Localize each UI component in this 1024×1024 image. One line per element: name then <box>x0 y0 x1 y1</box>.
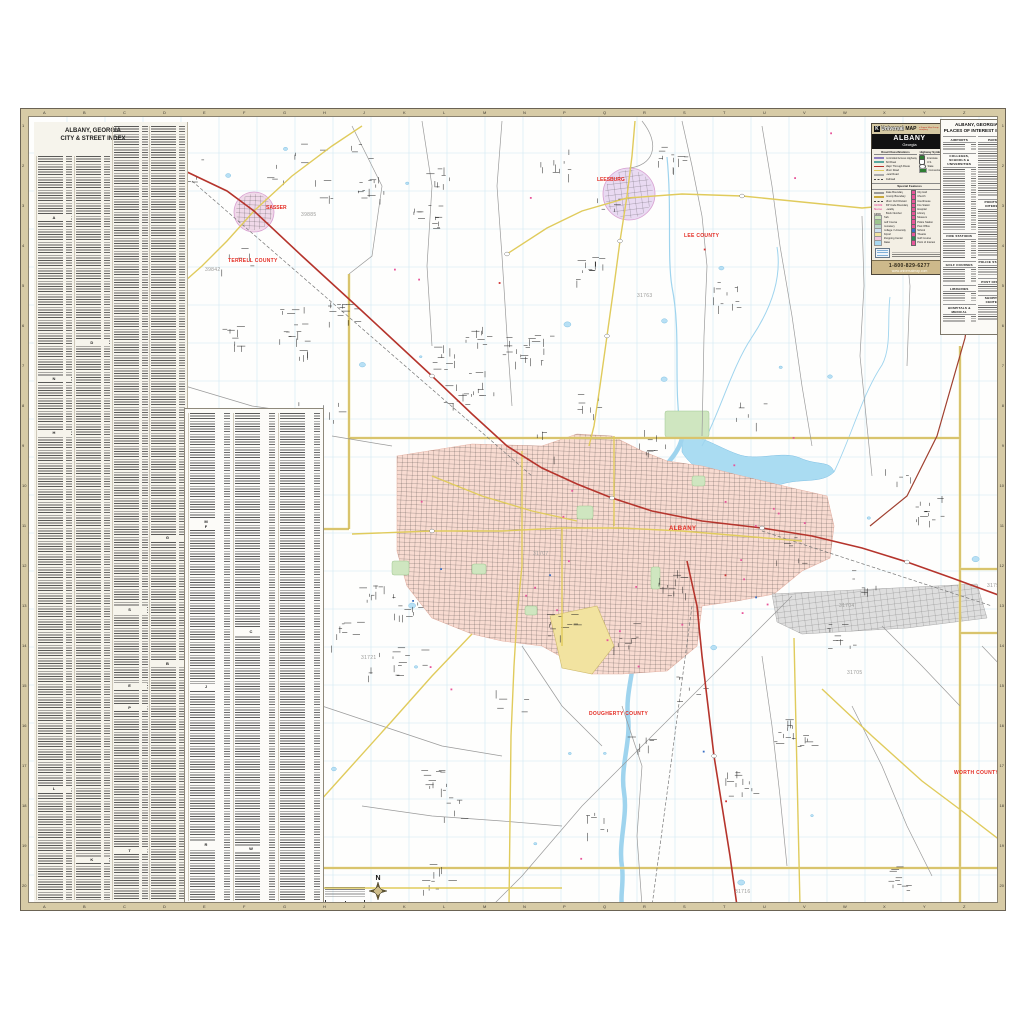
poi-index-panel: ALBANY, GEORGIA PLACES OF INTEREST INDEX… <box>940 119 998 335</box>
poi-section: GOLF COURSES <box>943 261 976 283</box>
map-label-albany: ALBANY <box>669 526 696 532</box>
poi-section-rows <box>943 293 976 302</box>
street-index-column <box>278 413 321 901</box>
frame-grid-number: 9 <box>22 443 24 448</box>
poi-section-rows <box>978 307 999 321</box>
poi-section-rows <box>943 169 976 231</box>
map-label-31721: 31721 <box>361 655 376 661</box>
frame-grid-letter: M <box>483 904 486 909</box>
map-area: SASSER39885TERRELL COUNTY39842LEESBURGLE… <box>28 116 998 903</box>
map-label-worth-county: WORTH COUNTY <box>954 770 998 776</box>
special-symbol-label: Post Office <box>917 225 930 228</box>
street-index-column <box>149 126 186 900</box>
index-section-letter: J <box>189 684 223 690</box>
frame-grid-number: 13 <box>1000 603 1004 608</box>
frame-grid-letter: P <box>563 110 566 115</box>
poi-section: POLICE STATIONS <box>978 259 999 276</box>
special-symbol-label: Theatre <box>917 233 926 236</box>
frame-grid-letter: V <box>803 904 806 909</box>
poi-section: AIRPORTS <box>943 136 976 151</box>
frame-grid-number: 20 <box>1000 883 1004 888</box>
frame-grid-number: 4 <box>1002 243 1004 248</box>
index-section-letter: P <box>113 705 147 711</box>
poi-section-header: FIRE STATIONS <box>943 233 976 240</box>
frame-grid-letter: G <box>283 904 286 909</box>
frame-grid-number: 5 <box>22 283 24 288</box>
frame-grid-letter: E <box>203 904 206 909</box>
copyright-microtext <box>325 887 365 898</box>
road-classifications: Road Classifications Controlled Access H… <box>874 150 917 182</box>
legend-inset-box <box>875 248 890 258</box>
frame-grid-number: 10 <box>22 483 26 488</box>
special-feature-swatch <box>874 192 884 194</box>
street-index-column <box>74 156 111 900</box>
index-section-letter: B <box>150 661 184 667</box>
frame-grid-number: 1 <box>22 123 24 128</box>
map-sheet-frame: AABBCCDDEEFFGGHHJJKKLLMMNNPPQQRRSSTTUUVV… <box>20 108 1006 911</box>
special-symbol-label: Courthouse <box>917 200 930 203</box>
special-symbol-label: School <box>917 229 925 232</box>
road-class-swatch <box>874 161 884 163</box>
frame-grid-number: 14 <box>22 643 26 648</box>
scale-bar <box>325 900 365 903</box>
index-section-letter: K <box>75 857 109 863</box>
frame-grid-letter: J <box>363 904 365 909</box>
frame-grid-letter: U <box>763 904 766 909</box>
frame-grid-letter: T <box>723 904 725 909</box>
frame-grid-number: 5 <box>1002 283 1004 288</box>
index-section-letter: G <box>150 535 184 541</box>
frame-grid-letter: M <box>483 110 486 115</box>
frame-grid-letter: P <box>563 904 566 909</box>
road-class-swatch <box>874 166 884 168</box>
highway-symbol-label: State <box>927 165 933 168</box>
street-index-panel-2: CFJMRW <box>184 408 324 903</box>
frame-grid-number: 18 <box>22 803 26 808</box>
frame-grid-letter: K <box>403 904 406 909</box>
special-feature-swatch <box>874 240 882 245</box>
poi-section: SHOPPING CENTERS <box>978 295 999 321</box>
poi-section-rows <box>978 286 999 293</box>
index-section-letter: C <box>234 629 268 635</box>
frame-grid-letter: Z <box>963 110 965 115</box>
frame-grid-number: 4 <box>22 243 24 248</box>
street-index-column <box>233 413 276 901</box>
poi-section-rows <box>978 211 999 257</box>
brand-map: MAP <box>905 126 916 132</box>
index-section-letter: S <box>113 607 147 613</box>
index-section-letter: D <box>75 340 109 346</box>
frame-grid-number: 19 <box>1000 843 1004 848</box>
frame-grid-number: 11 <box>22 523 26 528</box>
frame-grid-number: 11 <box>1000 523 1004 528</box>
frame-grid-number: 10 <box>1000 483 1004 488</box>
frame-grid-letter: Y <box>923 110 926 115</box>
kappa-logo-icon: K <box>874 126 880 133</box>
map-label-31716: 31716 <box>735 889 750 895</box>
legend-title-block: ALBANY Georgia <box>872 134 947 149</box>
frame-grid-letter: X <box>883 110 886 115</box>
frame-grid-number: 7 <box>22 363 24 368</box>
wall-map-page: AABBCCDDEEFFGGHHJJKKLLMMNNPPQQRRSSTTUUVV… <box>0 0 1024 1024</box>
special-feature-label: Water <box>884 241 891 244</box>
frame-grid-letter: S <box>683 904 686 909</box>
index-section-letter: N <box>37 376 71 382</box>
poi-section-header: COLLEGES, SCHOOLS & UNIVERSITIES <box>943 153 976 168</box>
frame-grid-letter: N <box>523 110 526 115</box>
frame-grid-number: 20 <box>22 883 26 888</box>
frame-grid-letter: Q <box>603 110 606 115</box>
frame-grid-letter: E <box>203 110 206 115</box>
road-class-label: Toll Road <box>886 161 897 164</box>
frame-grid-letter: S <box>683 110 686 115</box>
frame-grid-letter: Y <box>923 904 926 909</box>
frame-grid-letter: A <box>43 904 46 909</box>
map-label-31763: 31763 <box>637 293 652 299</box>
frame-grid-number: 15 <box>1000 683 1004 688</box>
index-section-letter: T <box>113 848 147 854</box>
poi-section-header: HOSPITALS & MEDICAL <box>943 304 976 315</box>
map-label-dougherty-county: DOUGHERTY COUNTY <box>589 711 648 717</box>
map-label-31705: 31705 <box>847 670 862 676</box>
frame-grid-number: 19 <box>22 843 26 848</box>
special-symbol-label: Hospital <box>917 208 926 211</box>
road-class-label: Railroad <box>886 178 896 181</box>
frame-grid-number: 13 <box>22 603 26 608</box>
road-class-swatch <box>874 174 884 176</box>
special-feature-label: Shopping Center <box>884 237 903 240</box>
poi-section: HOSPITALS & MEDICAL <box>943 304 976 323</box>
special-feature-swatch <box>874 196 884 198</box>
frame-grid-number: 15 <box>22 683 26 688</box>
frame-grid-letter: B <box>83 904 86 909</box>
frame-grid-letter: F <box>243 904 245 909</box>
road-class-swatch <box>874 170 884 172</box>
road-class-label: Minor Road <box>886 169 899 172</box>
street-index-column <box>112 126 149 900</box>
map-label-39842: 39842 <box>205 267 220 273</box>
frame-grid-number: 7 <box>1002 363 1004 368</box>
poi-section-header: POLICE STATIONS <box>978 259 999 266</box>
frame-grid-letter: N <box>523 904 526 909</box>
frame-grid-letter: L <box>443 110 445 115</box>
road-class-label: Local Road <box>886 173 899 176</box>
special-symbol-label: Fire Station <box>917 204 930 207</box>
frame-grid-letter: H <box>323 110 326 115</box>
frame-grid-number: 6 <box>1002 323 1004 328</box>
frame-grid-number: 16 <box>1000 723 1004 728</box>
compass-north-label: N <box>367 875 389 882</box>
frame-grid-letter: B <box>83 110 86 115</box>
road-class-swatch <box>874 179 884 180</box>
frame-grid-letter: K <box>403 110 406 115</box>
legend-title: ALBANY <box>872 135 947 142</box>
highway-symbol-label: Connector <box>928 169 940 172</box>
frame-grid-number: 12 <box>22 563 26 568</box>
frame-grid-letter: T <box>723 110 725 115</box>
map-label-31707: 31707 <box>533 551 548 557</box>
special-feature-label: ZIP Code Boundary <box>886 204 909 207</box>
poi-section-rows <box>978 144 999 197</box>
index-section-letter: L <box>37 786 71 792</box>
poi-column-left: AIRPORTSCOLLEGES, SCHOOLS & UNIVERSITIES… <box>943 136 976 332</box>
index-section-letter: M <box>189 519 223 525</box>
frame-grid-number: 14 <box>1000 643 1004 648</box>
frame-grid-letter: F <box>243 110 245 115</box>
special-symbol-label: Police Station <box>917 221 933 224</box>
road-class-label: Controlled Access Highway <box>886 157 917 160</box>
special-feature-swatch <box>874 201 884 202</box>
poi-section: POST OFFICES <box>978 278 999 293</box>
frame-grid-number: 1 <box>1002 123 1004 128</box>
special-feature-label: Locality <box>886 208 895 211</box>
poi-section-header: LIBRARIES <box>943 285 976 292</box>
connector-route-icon <box>919 168 927 173</box>
legend-footer: 1-800-829-6277 www.universalmap.com <box>872 260 947 274</box>
index-section-letter: E <box>113 683 147 689</box>
footer-website: www.universalmap.com <box>872 269 947 273</box>
special-features-header: Special Features <box>872 183 947 190</box>
frame-grid-letter: G <box>283 110 286 115</box>
frame-grid-letter: A <box>43 110 46 115</box>
map-label-leesburg: LEESBURG <box>597 177 625 183</box>
frame-grid-number: 18 <box>1000 803 1004 808</box>
street-index-panel: ALBANY, GEORGIA CITY & STREET INDEX ABDE… <box>34 122 188 903</box>
frame-grid-number: 8 <box>1002 403 1004 408</box>
street-index-column <box>188 413 231 901</box>
map-label-lee-county: LEE COUNTY <box>684 233 719 239</box>
compass-star-icon <box>368 882 388 900</box>
frame-grid-number: 8 <box>22 403 24 408</box>
frame-grid-number: 9 <box>1002 443 1004 448</box>
frame-grid-letter: V <box>803 110 806 115</box>
special-symbol-label: Church <box>917 195 925 198</box>
frame-grid-letter: D <box>163 904 166 909</box>
poi-section: PARKS <box>978 136 999 197</box>
map-label-39885: 39885 <box>301 212 316 218</box>
special-features-left: State BoundaryCounty BoundaryMinor Civil… <box>874 191 909 245</box>
poi-section-rows <box>978 267 999 276</box>
poi-section-rows <box>943 144 976 151</box>
index-section-letter: A <box>37 215 71 221</box>
poi-section-rows <box>943 316 976 323</box>
frame-grid-letter: C <box>123 110 126 115</box>
frame-grid-letter: J <box>363 110 365 115</box>
legend-box: K Universal MAP a Kappa Map Group compan… <box>871 123 948 275</box>
frame-grid-letter: W <box>843 904 847 909</box>
special-symbol-icon <box>911 240 916 245</box>
map-label-31791: 31791 <box>987 583 998 589</box>
frame-grid-number: 3 <box>1002 203 1004 208</box>
frame-grid-letter: L <box>443 904 445 909</box>
poi-section-header: POST OFFICES <box>978 278 999 285</box>
highway-symbol-label: Interstate <box>927 157 938 160</box>
poi-section: FIRE STATIONS <box>943 233 976 259</box>
special-feature-label: State Boundary <box>886 191 904 194</box>
index-section-letter: W <box>234 846 268 852</box>
poi-section: POINTS OF INTEREST <box>978 199 999 257</box>
frame-grid-letter: C <box>123 904 126 909</box>
frame-grid-number: 2 <box>22 163 24 168</box>
map-label-sasser: SASSER <box>266 205 287 211</box>
brand-universal: Universal <box>881 126 904 132</box>
legend-note-microtext <box>892 252 944 258</box>
index-section-letter: F <box>189 524 223 530</box>
poi-column-right: PARKSPOINTS OF INTERESTPOLICE STATIONSPO… <box>978 136 999 332</box>
special-symbol-label: Golf Course <box>917 237 931 240</box>
special-symbol-label: City Hall <box>917 191 927 194</box>
special-feature-label: Airport <box>884 233 892 236</box>
poi-section-header: PARKS <box>978 136 999 143</box>
frame-grid-letter: W <box>843 110 847 115</box>
legend-subtitle: Georgia <box>872 142 947 147</box>
special-feature-label: Minor Civil Division <box>886 200 908 203</box>
road-class-label: Major Through Route <box>886 165 910 168</box>
special-feature-label: Park <box>884 216 889 219</box>
map-label-31704: 31704 <box>839 603 854 609</box>
poi-section-header: POINTS OF INTEREST <box>978 199 999 210</box>
road-class-row: Railroad <box>874 177 917 181</box>
road-classifications-header: Road Classifications <box>874 150 917 156</box>
frame-grid-letter: Z <box>963 904 965 909</box>
special-feature-label: College / University <box>884 229 906 232</box>
special-feature-label: Block Number <box>886 212 902 215</box>
frame-grid-number: 3 <box>22 203 24 208</box>
poi-title-line2: PLACES OF INTEREST INDEX <box>942 128 998 134</box>
frame-grid-letter: D <box>163 110 166 115</box>
frame-grid-letter: R <box>643 904 646 909</box>
poi-section-rows <box>943 241 976 259</box>
frame-grid-number: 17 <box>22 763 26 768</box>
road-class-swatch <box>874 157 884 159</box>
index-section-letter: H <box>37 430 71 436</box>
poi-section-header: AIRPORTS <box>943 136 976 143</box>
frame-grid-number: 17 <box>1000 763 1004 768</box>
index-section-letter: R <box>189 842 223 848</box>
special-symbol-label: Museum <box>917 216 927 219</box>
compass-rose: N <box>367 875 389 901</box>
special-feature-label: Golf Course <box>884 221 898 224</box>
special-feature-label: Cemetery <box>884 225 895 228</box>
special-feature-row: Water <box>874 241 909 245</box>
frame-grid-letter: H <box>323 904 326 909</box>
frame-grid-number: 16 <box>22 723 26 728</box>
poi-section-rows <box>943 269 976 283</box>
map-label-terrell-county: TERRELL COUNTY <box>228 258 278 264</box>
frame-grid-number: 6 <box>22 323 24 328</box>
frame-grid-letter: X <box>883 904 886 909</box>
frame-grid-letter: U <box>763 110 766 115</box>
frame-grid-letter: R <box>643 110 646 115</box>
poi-section-header: GOLF COURSES <box>943 261 976 268</box>
poi-section: COLLEGES, SCHOOLS & UNIVERSITIES <box>943 153 976 231</box>
brand-bar: K Universal MAP a Kappa Map Group compan… <box>872 124 947 134</box>
frame-grid-number: 12 <box>1000 563 1004 568</box>
frame-grid-letter: Q <box>603 904 606 909</box>
poi-section: LIBRARIES <box>943 285 976 302</box>
scale-and-copyright <box>325 887 365 903</box>
highway-symbol-label: U.S. <box>927 161 932 164</box>
poi-section-header: SHOPPING CENTERS <box>978 295 999 306</box>
frame-grid-number: 2 <box>1002 163 1004 168</box>
special-feature-label: County Boundary <box>886 195 906 198</box>
special-symbol-label: Point of Interest <box>917 241 935 244</box>
special-symbol-label: Library <box>917 212 925 215</box>
